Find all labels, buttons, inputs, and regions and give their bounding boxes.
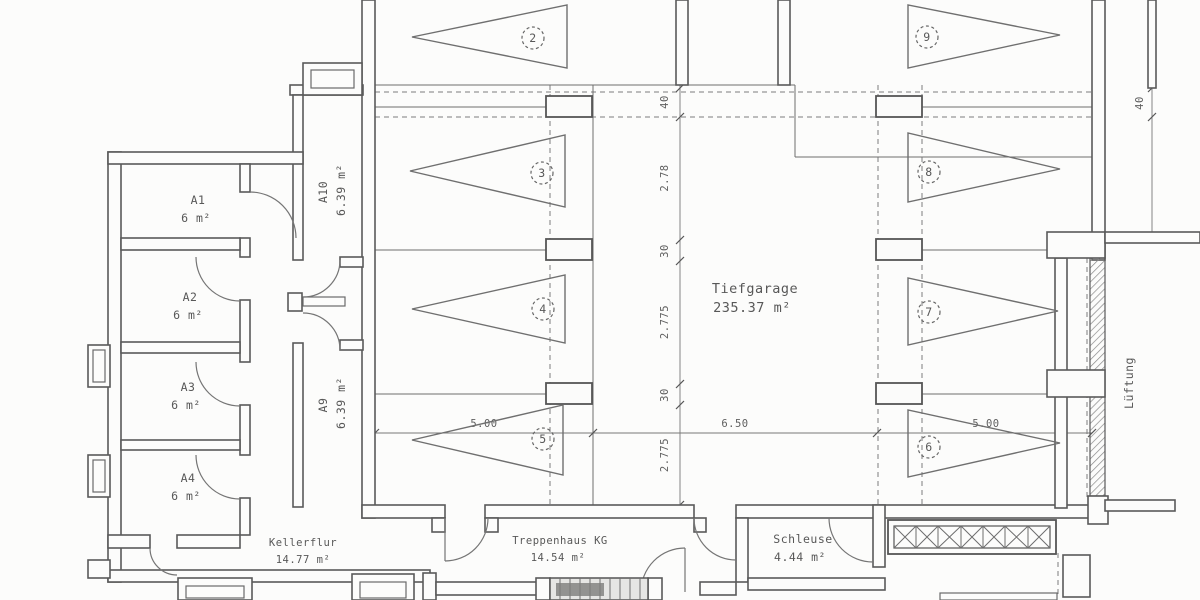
garage-bottom-wall: [362, 505, 445, 518]
cellar-box-left-inner: [186, 586, 244, 598]
parking-space-7-number: 7: [925, 305, 932, 319]
dim-2-78: 2.78: [659, 164, 671, 191]
garage-bottom-wall: [485, 505, 694, 518]
schleuse-area: 4.44 m²: [774, 550, 826, 564]
garage-bottom-wall: [736, 505, 1105, 518]
corridor-wall: [240, 238, 250, 257]
window-left-lower-inner: [93, 460, 105, 492]
top-right-dimension: 40: [1134, 84, 1156, 232]
treppenhaus-area: 14.54 m²: [531, 552, 586, 564]
a9-left-wall: [293, 343, 303, 507]
treppenhaus-bottom-wall: [700, 582, 736, 595]
dim-30-b: 30: [659, 388, 671, 402]
shaft-box-bottom-right: [1063, 555, 1090, 597]
pillar-right-wall-upper: [1047, 232, 1105, 258]
garage-pillars: [546, 96, 922, 404]
vertical-dimension-chain: 40 2.78 30 2.775 30 2.775: [659, 84, 684, 509]
door-arc-a1: [250, 192, 296, 238]
room-a10-label: A10: [316, 181, 330, 203]
door-arc-a2: [196, 257, 240, 301]
stair-jamb-right: [648, 578, 662, 600]
a10-left-wall: [293, 95, 303, 260]
room-a3-area: 6 m²: [171, 398, 201, 412]
a9-top-wall-stub: [340, 340, 363, 350]
door-arc-treppenhaus: [445, 518, 488, 561]
window-left-bottom: [88, 560, 110, 578]
dim-30-a: 30: [659, 244, 671, 258]
schleuse-left-wall: [736, 518, 748, 582]
room-a1-label: A1: [191, 193, 206, 207]
corridor-wall: [240, 405, 250, 455]
bottom-wall-stub: [423, 573, 436, 600]
dim-2-775-a: 2.775: [659, 305, 671, 339]
schleuse-right-wall: [873, 505, 885, 567]
tiefgarage-label: Tiefgarage: [712, 281, 798, 297]
wall-a3-a4: [121, 440, 240, 450]
parking-space-6-number: 6: [925, 440, 932, 454]
bottom-right-wall: [940, 593, 1057, 600]
parking-space-2-number: 2: [529, 31, 536, 45]
floor-plan-drawing: 40 2.78 30 2.775 30 2.775 5.00 6.50 5.00…: [0, 0, 1200, 600]
schleuse-label: Schleuse: [773, 532, 832, 546]
door-arc-a10: [303, 260, 340, 297]
room-a2-label: A2: [183, 290, 198, 304]
wall-a2-a3: [121, 342, 240, 353]
right-exterior-wall-upper: [1105, 232, 1200, 243]
room-a3-label: A3: [181, 380, 196, 394]
room-a2-area: 6 m²: [173, 308, 203, 322]
a10-window-inner: [311, 70, 354, 88]
room-a4-label: A4: [181, 471, 196, 485]
kellerflur-area: 14.77 m²: [276, 554, 331, 566]
room-a10-area: 6.39 m²: [334, 164, 348, 216]
treppenhaus-label: Treppenhaus KG: [512, 535, 608, 547]
stairs-section-fill: [556, 583, 604, 596]
parking-space-2-marker: [412, 5, 567, 68]
a4-bottom-wall: [177, 535, 240, 548]
parking-space-4-number: 4: [539, 302, 546, 316]
door-arc-a9: [303, 313, 340, 350]
right-exterior-wall-lower: [1105, 500, 1175, 511]
top-wall-stub-right: [778, 0, 790, 85]
walls: [88, 0, 1200, 600]
dim-6-50: 6.50: [721, 418, 748, 430]
corridor-wall: [240, 164, 250, 192]
treppenhaus-bottom-wall: [436, 582, 540, 595]
garage-right-wall: [1092, 0, 1105, 260]
door-arcs: [150, 192, 873, 592]
a10-bottom-wall-stub: [340, 257, 363, 267]
dim-2-775-b: 2.775: [659, 438, 671, 472]
corridor-wall: [240, 498, 250, 535]
stair-jamb-left: [536, 578, 550, 600]
parking-space-8-number: 8: [925, 165, 932, 179]
wall-a1-a2: [121, 238, 240, 250]
floor-plan-canvas: 40 2.78 30 2.775 30 2.775 5.00 6.50 5.00…: [0, 0, 1200, 600]
stairs: [550, 578, 648, 600]
parking-space-3-number: 3: [538, 166, 545, 180]
room-a4-area: 6 m²: [171, 489, 201, 503]
dim-40-top-right: 40: [1134, 96, 1146, 110]
pillar-right-wall-lower: [1047, 370, 1105, 397]
door-arc-a3: [196, 362, 240, 406]
door-arc-a4: [196, 455, 240, 499]
tiefgarage-area: 235.37 m²: [713, 300, 791, 316]
room-a9-area: 6.39 m²: [334, 377, 348, 429]
parking-spaces: 2 3 4 5 9 8 7 6: [410, 5, 1060, 477]
garage-left-wall: [362, 0, 375, 518]
top-exterior-wall: [108, 152, 303, 164]
parking-space-9-number: 9: [923, 30, 930, 44]
parking-space-9-marker: [908, 5, 1060, 68]
corridor-wall: [240, 300, 250, 362]
parking-space-5-number: 5: [539, 432, 546, 446]
dim-5-00-right: 5.00: [972, 418, 999, 430]
kellerflur-label: Kellerflur: [269, 537, 337, 549]
lueftung-label: Lüftung: [1122, 357, 1136, 409]
ventilation-grille: [888, 520, 1056, 554]
junction-duct: [303, 297, 345, 306]
door-jamb: [432, 518, 445, 532]
top-right-wall: [1148, 0, 1156, 88]
door-arc-schleuse-right: [829, 518, 873, 562]
junction-pillar: [288, 293, 302, 311]
room-a9-label: A9: [316, 398, 330, 413]
a4-bottom-wall: [108, 535, 150, 548]
room-a1-area: 6 m²: [181, 211, 211, 225]
cellar-box-mid-inner: [360, 582, 406, 598]
dim-40: 40: [659, 95, 671, 109]
top-wall-stub-left: [676, 0, 688, 85]
schleuse-bottom-wall: [748, 578, 885, 590]
window-left-upper-inner: [93, 350, 105, 382]
